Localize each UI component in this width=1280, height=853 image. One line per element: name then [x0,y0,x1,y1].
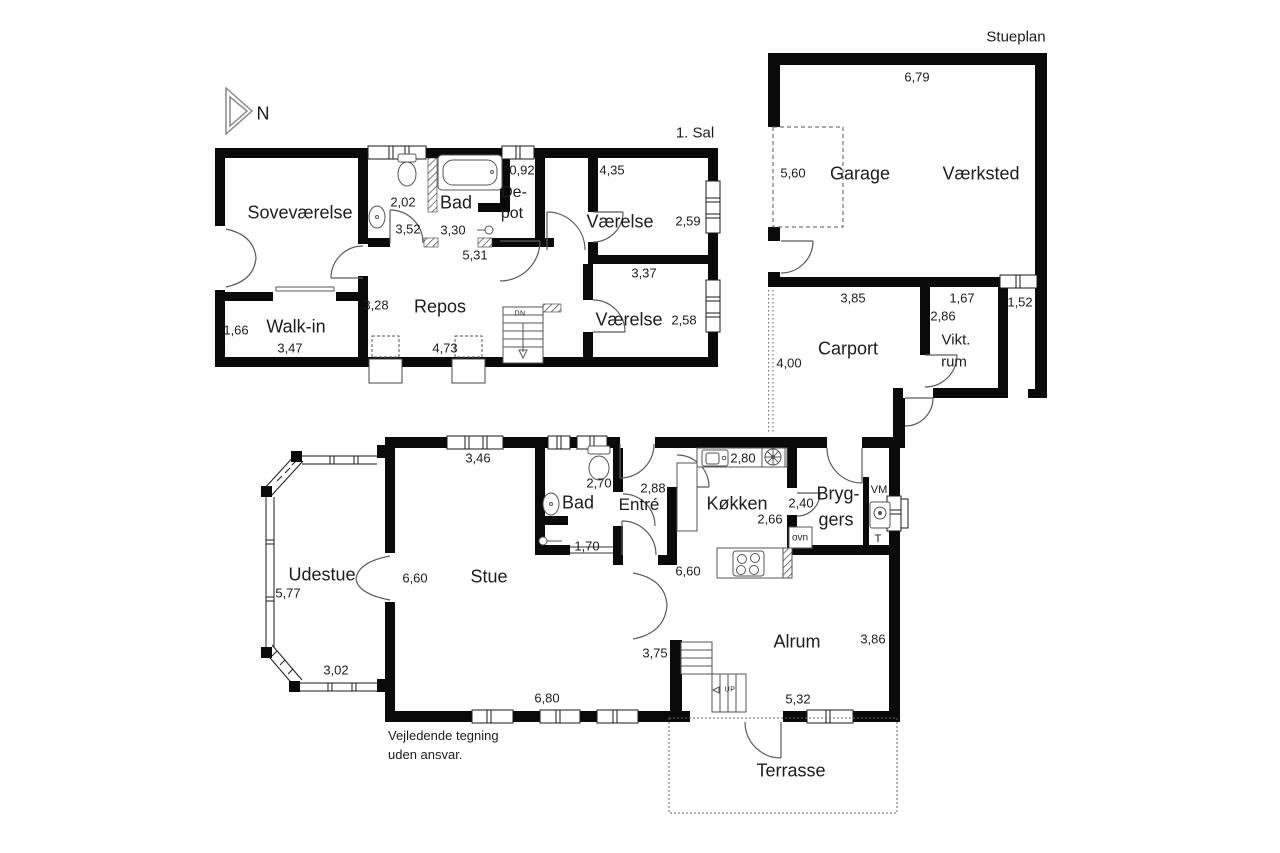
garage-block-walls [768,53,1047,448]
dim-alrum-1: 6,60 [675,564,700,579]
dim-vaerksted: 6,79 [904,70,929,85]
stairs-up [681,642,746,712]
disclaimer-line-2: uden ansvar. [388,745,462,764]
dim-vaerelse-se-2: 2,58 [671,313,696,328]
north-label: N [257,104,270,125]
dim-udestue-1: 5,77 [275,586,300,601]
dim-kokken-1: 2,80 [730,451,755,466]
room-label-terrasse: Terrasse [756,761,825,782]
dim-stue-2: 6,60 [402,571,427,586]
dim-alrum-4: 5,32 [785,692,810,707]
dim-kokken-2: 2,66 [757,512,782,527]
dim-bad-stue-1: 2,70 [586,476,611,491]
stairs-down-label: DN [514,311,525,318]
room-label-stue: Stue [470,567,507,588]
room-label-garage: Garage [830,164,890,185]
sliding-door-symbol [276,287,334,291]
dim-walkin-1: 1,66 [223,323,248,338]
dryer-label: T [875,533,882,545]
dim-sovevaerelse: 3,52 [395,222,420,237]
floorplan-canvas: N 1. Sal Stueplan Soveværelse 3,52 Bad 2… [0,0,1280,853]
room-label-viktrum-1: Vikt. [942,332,971,349]
dim-walkin-2: 3,47 [277,341,302,356]
kitchen-side-counter [677,463,697,531]
dim-stue-1: 3,46 [465,451,490,466]
dim-vaerelse-se-1: 3,37 [631,266,656,281]
room-label-sovevaerelse: Soveværelse [247,203,352,224]
dim-carport-1: 3,85 [840,291,865,306]
room-label-alrum: Alrum [773,632,820,653]
floorplan-drawing [0,0,1280,853]
dim-vaerelse-ne-1: 4,35 [599,163,624,178]
room-label-bad-1sal: Bad [440,193,472,214]
room-label-vaerelse-ne: Værelse [586,212,653,233]
toilet-icon [588,446,610,454]
garage-window [1000,275,1037,288]
washer-label: VM [871,484,888,496]
dim-repos-2: 5,31 [462,248,487,263]
dim-udestue-2: 3,02 [323,663,348,678]
oven-label: ovn [792,533,808,544]
room-label-entre: Entré [619,495,660,515]
room-label-bryggers-1: Bryg- [816,484,859,505]
room-label-udestue: Udestue [288,565,355,586]
first-floor-title: 1. Sal [676,125,714,142]
dim-viktrum-2: 2,86 [930,309,955,324]
ground-floor-title: Stueplan [986,29,1045,46]
dim-entre: 2,88 [640,481,665,496]
room-label-depot-1: De- [501,184,527,202]
toilet-icon [398,154,416,162]
dim-alrum-2: 3,75 [642,646,667,661]
dim-garage: 5,60 [780,166,805,181]
room-label-repos: Repos [414,297,466,318]
dim-stue-3: 6,80 [534,691,559,706]
radiator-icon [485,226,493,234]
radiator-icon [539,537,547,545]
dim-niche: 1,52 [1007,295,1032,310]
carport-boundary-dotted [769,290,774,434]
room-label-viktrum-2: rum [941,354,967,371]
dim-bad-1sal-2: 3,30 [440,223,465,238]
room-label-bryggers-2: gers [818,510,853,531]
room-label-walkin: Walk-in [266,317,325,338]
dim-vaerelse-ne-2: 2,59 [675,214,700,229]
stairs-up-label: UP [725,687,736,694]
dim-repos-1: 3,28 [363,298,388,313]
dim-bad-stue-2: 1,70 [574,539,599,554]
dim-bad-1sal-1: 2,02 [390,195,415,210]
dim-viktrum-1: 1,67 [949,291,974,306]
room-label-vaerksted: Værksted [942,164,1019,185]
room-label-bad-stue: Bad [562,493,594,514]
room-label-vaerelse-se: Værelse [595,310,662,331]
dim-depot: 0,92 [509,163,534,178]
room-label-depot-2: pot [501,205,523,223]
dim-bryggers: 2,40 [788,496,813,511]
dim-repos-3: 4,73 [432,341,457,356]
dim-carport-2: 4,00 [776,356,801,371]
room-label-carport: Carport [818,339,878,360]
north-arrow-icon [226,88,252,134]
garage-doors [781,241,957,426]
disclaimer-line-1: Vejledende tegning [388,726,499,745]
dim-alrum-3: 3,86 [860,632,885,647]
